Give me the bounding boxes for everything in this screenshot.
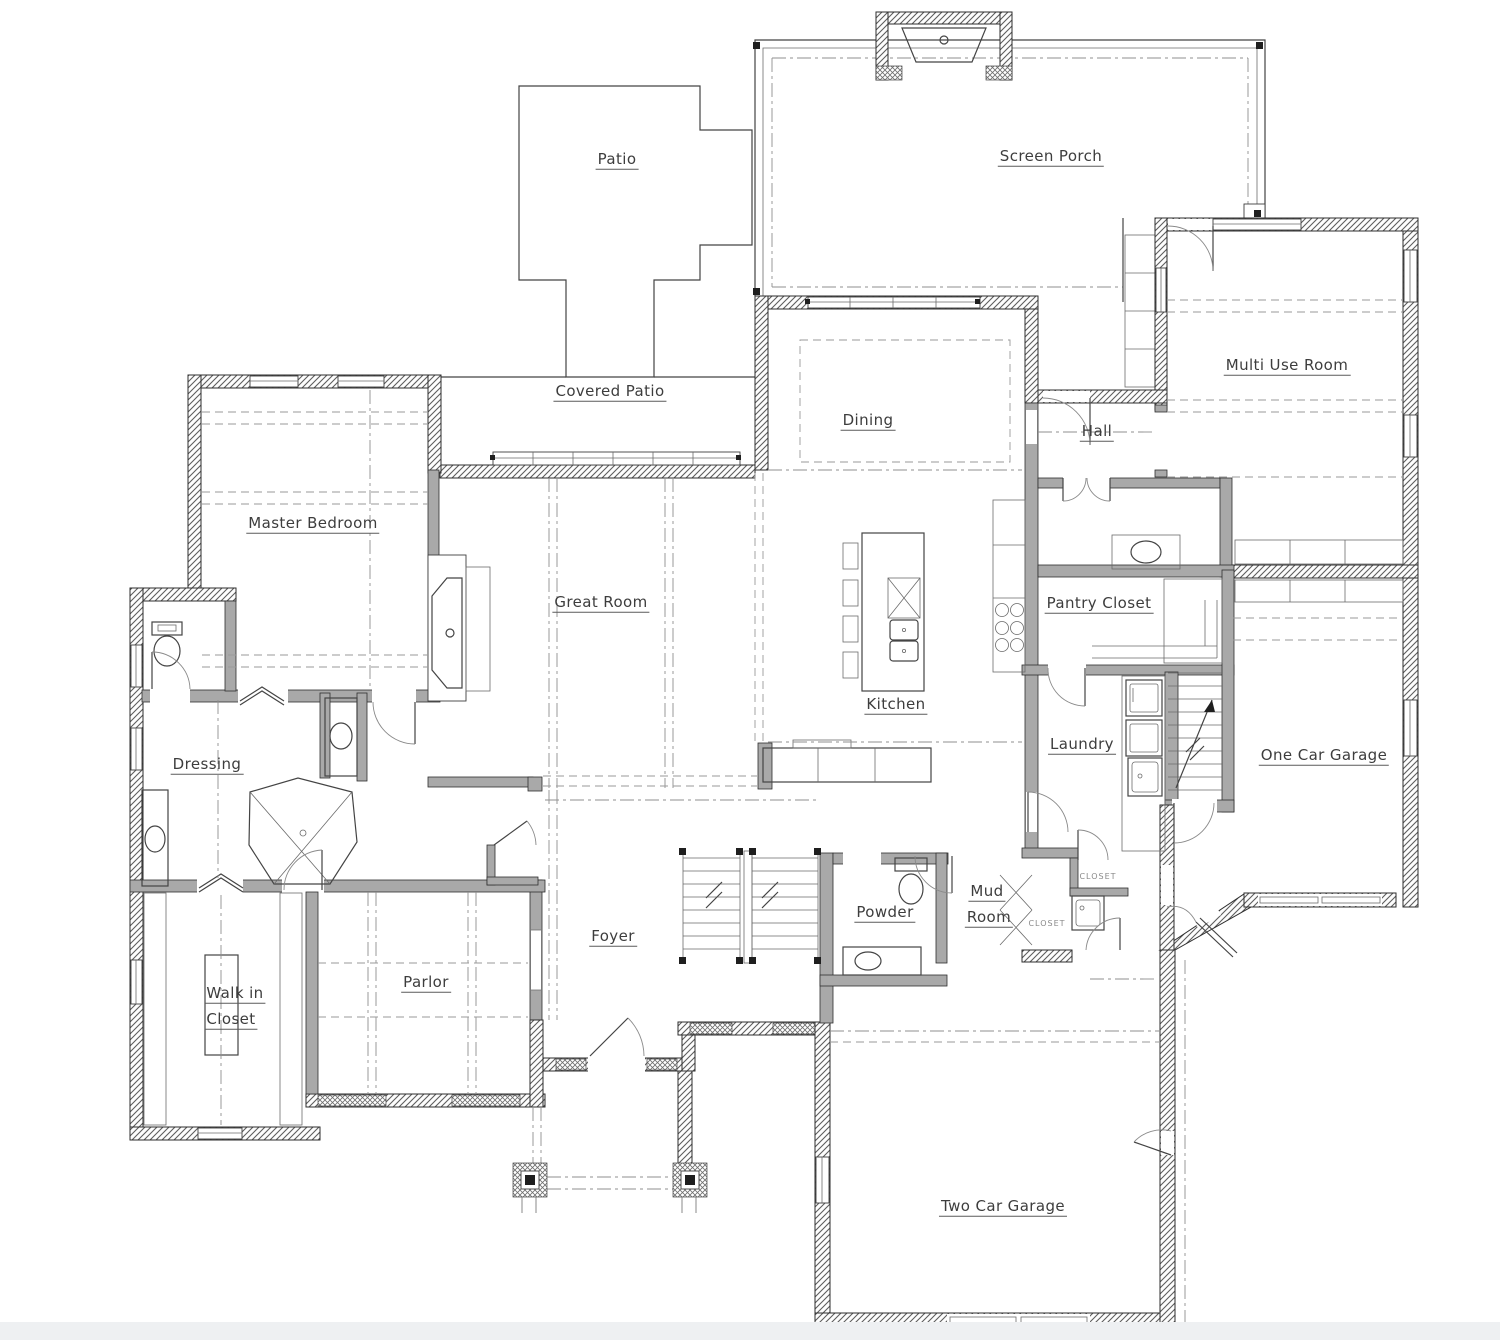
room-label-master-bedroom: Master Bedroom <box>246 515 379 534</box>
room-label-foyer: Foyer <box>589 928 637 947</box>
kitchen-island <box>843 533 924 691</box>
room-label-screen-porch: Screen Porch <box>998 148 1104 167</box>
room-label-walk-in-1: Walk in <box>204 985 265 1004</box>
room-label-laundry: Laundry <box>1048 736 1116 755</box>
closet-label-a: CLOSET <box>1077 873 1118 883</box>
great-room-fireplace-icon <box>428 555 490 701</box>
room-label-mud-2: Room <box>965 909 1013 928</box>
room-label-mud-1: Mud <box>968 883 1005 902</box>
front-stairs <box>679 848 821 964</box>
room-label-dining: Dining <box>841 412 896 431</box>
room-label-pantry: Pantry Closet <box>1045 595 1154 614</box>
screen-porch <box>753 12 1265 387</box>
room-label-dressing: Dressing <box>171 756 244 775</box>
room-label-parlor: Parlor <box>401 974 451 993</box>
laundry-fixtures <box>1122 676 1165 851</box>
page-edge <box>0 1322 1500 1340</box>
mud-room-fixtures <box>1000 875 1104 945</box>
porch-fireplace-icon <box>876 12 1012 80</box>
room-label-patio: Patio <box>596 151 639 170</box>
room-label-two-car-garage: Two Car Garage <box>939 1198 1067 1217</box>
room-label-one-car-garage: One Car Garage <box>1259 747 1389 766</box>
closet-label-b: CLOSET <box>1026 920 1067 930</box>
room-label-hall: Hall <box>1080 423 1114 442</box>
floor-plan: Patio Screen Porch Covered Patio Multi U… <box>0 0 1500 1340</box>
floor-plan-drawing <box>0 0 1500 1340</box>
room-label-kitchen: Kitchen <box>864 696 927 715</box>
ceiling-lines <box>202 300 1403 1327</box>
room-label-multi-use: Multi Use Room <box>1224 357 1351 376</box>
room-label-walk-in-2: Closet <box>204 1011 257 1030</box>
room-label-covered-patio: Covered Patio <box>553 383 666 402</box>
patio-outline <box>440 86 755 377</box>
room-label-powder: Powder <box>854 904 915 923</box>
room-label-great-room: Great Room <box>552 594 649 613</box>
room-a-sink <box>1112 535 1180 569</box>
